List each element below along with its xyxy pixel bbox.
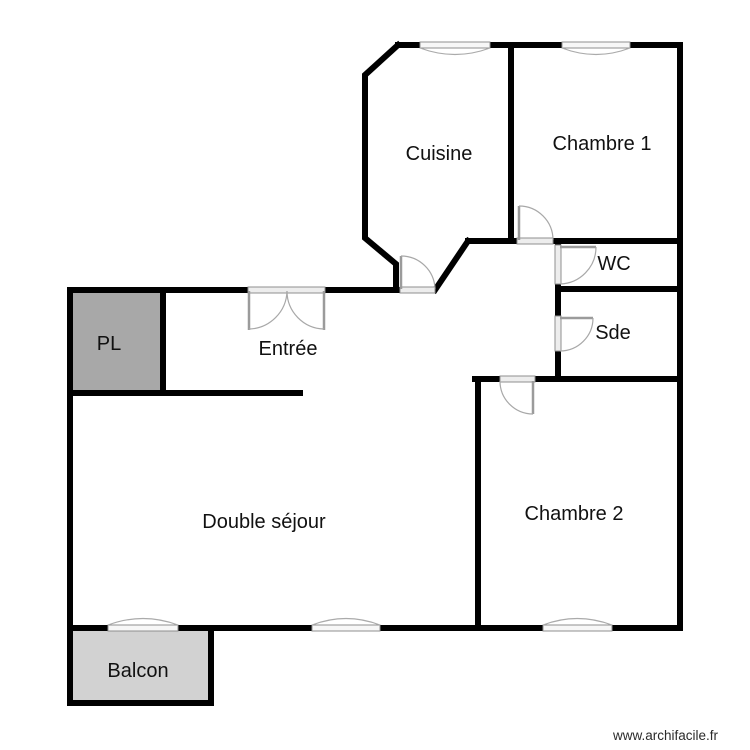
window-sejour[interactable] <box>312 619 380 632</box>
door-swing-arc <box>287 291 324 329</box>
room-label-pl[interactable]: PL <box>97 333 121 355</box>
window-swing-arc <box>543 619 612 626</box>
floor-plan-canvas[interactable]: Cuisine Chambre 1 WC Sde Entrée PL Doubl… <box>0 0 750 750</box>
room-label-cuisine[interactable]: Cuisine <box>406 143 473 165</box>
door-chambre2[interactable] <box>500 376 535 414</box>
window-glass <box>312 625 380 631</box>
door-threshold <box>555 316 561 351</box>
door-swing-arc <box>519 206 553 240</box>
window-glass <box>108 625 178 631</box>
room-label-double-sejour[interactable]: Double séjour <box>202 511 326 533</box>
window-glass <box>420 42 490 48</box>
door-hall[interactable] <box>400 256 435 293</box>
watermark-link[interactable]: www.archifacile.fr <box>612 728 719 743</box>
door-threshold <box>500 376 535 382</box>
room-label-entree[interactable]: Entrée <box>259 338 318 360</box>
door-entree-double[interactable] <box>248 287 325 330</box>
window-cuisine[interactable] <box>420 42 490 55</box>
window-glass <box>562 42 630 48</box>
room-label-sde[interactable]: Sde <box>595 322 631 344</box>
wall-cuisine-left <box>365 45 398 290</box>
door-swing-arc <box>560 247 596 284</box>
window-balcon[interactable] <box>108 619 178 632</box>
window-swing-arc <box>108 619 178 626</box>
door-threshold <box>400 287 435 293</box>
door-chambre1[interactable] <box>517 206 553 244</box>
room-labels: Cuisine Chambre 1 WC Sde Entrée PL Doubl… <box>97 133 652 682</box>
floor-plan-page: Cuisine Chambre 1 WC Sde Entrée PL Doubl… <box>0 0 750 750</box>
door-sde[interactable] <box>555 316 593 351</box>
door-threshold <box>517 238 553 244</box>
door-wc[interactable] <box>555 245 596 284</box>
window-swing-arc <box>312 619 380 626</box>
door-swing-arc <box>560 318 593 351</box>
room-label-wc[interactable]: WC <box>597 253 630 275</box>
window-chambre2[interactable] <box>543 619 612 632</box>
window-swing-arc <box>562 48 630 55</box>
window-glass <box>543 625 612 631</box>
window-chambre1[interactable] <box>562 42 630 55</box>
doors <box>248 206 596 414</box>
room-label-chambre2[interactable]: Chambre 2 <box>525 503 624 525</box>
door-swing-arc <box>401 256 435 289</box>
window-swing-arc <box>420 48 490 55</box>
door-swing-arc <box>500 381 533 414</box>
wall-hall-diagonal <box>435 241 468 290</box>
door-threshold <box>555 245 561 284</box>
door-swing-arc <box>249 291 287 329</box>
windows <box>108 42 630 631</box>
room-label-chambre1[interactable]: Chambre 1 <box>553 133 652 155</box>
room-label-balcon[interactable]: Balcon <box>107 660 168 682</box>
